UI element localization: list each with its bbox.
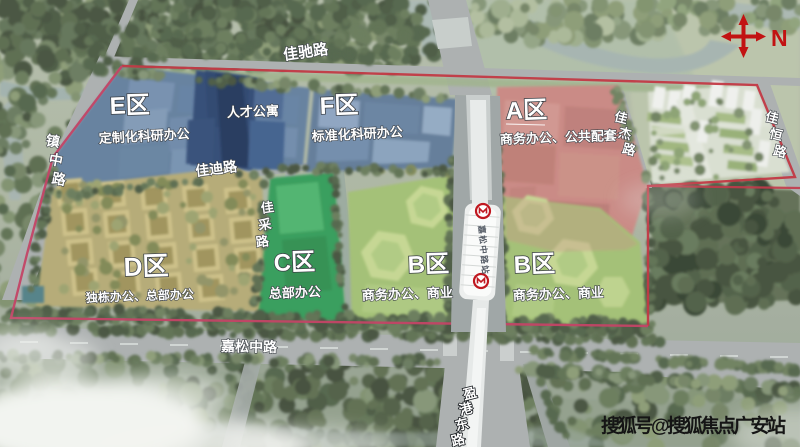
svg-text:B区: B区 xyxy=(407,251,449,279)
svg-text:B区: B区 xyxy=(513,251,555,279)
svg-text:N: N xyxy=(771,25,788,51)
svg-text:镇: 镇 xyxy=(45,132,62,150)
svg-text:人才公寓: 人才公寓 xyxy=(227,103,280,120)
svg-text:中: 中 xyxy=(478,245,489,255)
svg-text:嘉: 嘉 xyxy=(476,224,487,235)
svg-text:商务办公、商业: 商务办公、商业 xyxy=(513,285,604,303)
svg-text:C区: C区 xyxy=(273,249,315,277)
svg-text:A区: A区 xyxy=(505,97,547,125)
svg-text:佳: 佳 xyxy=(260,199,275,216)
svg-text:D区: D区 xyxy=(123,250,169,282)
svg-text:商务办公、商业: 商务办公、商业 xyxy=(362,285,453,303)
svg-text:F区: F区 xyxy=(319,92,359,120)
svg-text:中: 中 xyxy=(48,151,65,169)
svg-text:搜狐号@搜狐焦点广安站: 搜狐号@搜狐焦点广安站 xyxy=(601,414,786,437)
svg-text:嘉松中路: 嘉松中路 xyxy=(220,338,278,355)
svg-text:E区: E区 xyxy=(109,92,150,120)
svg-text:总部办公: 总部办公 xyxy=(269,284,322,301)
